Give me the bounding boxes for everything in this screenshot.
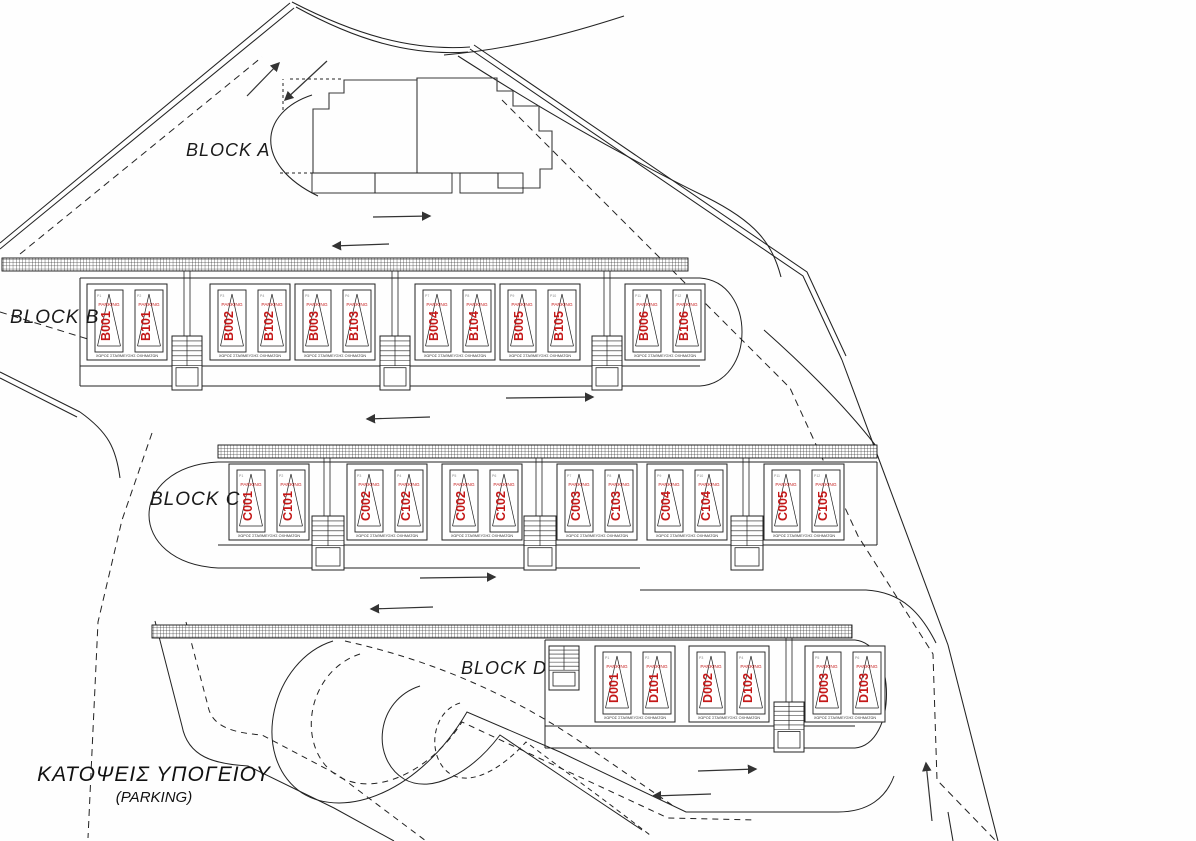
stall-ptag: P10 bbox=[550, 294, 556, 298]
stall-parking-word: PARKING bbox=[775, 482, 797, 488]
parking-stall-C004: P9PARKINGC004 bbox=[655, 470, 683, 532]
stall-id: C001 bbox=[241, 491, 255, 521]
stall-caption: ΧΩΡΟΣ ΣΤΑΘΜΕΥΣΗΣ ΟΧΗΜΑΤΩΝ bbox=[96, 354, 158, 358]
stall-ptag: P5 bbox=[815, 656, 819, 660]
stall-ptag: P4 bbox=[739, 656, 743, 660]
stall-ptag: P1 bbox=[605, 656, 609, 660]
stall-id: B002 bbox=[222, 311, 236, 341]
parking-stall-C003: P7PARKINGC003 bbox=[565, 470, 593, 532]
direction-arrow bbox=[367, 417, 430, 419]
stall-ptag: P4 bbox=[397, 474, 401, 478]
stall-id: D001 bbox=[607, 673, 621, 703]
stall-caption: ΧΩΡΟΣ ΣΤΑΘΜΕΥΣΗΣ ΟΧΗΜΑΤΩΝ bbox=[566, 534, 628, 538]
stall-parking-word: PARKING bbox=[815, 482, 837, 488]
stall-ptag: P8 bbox=[465, 294, 469, 298]
stall-ptag: P2 bbox=[137, 294, 141, 298]
stall-parking-word: PARKING bbox=[606, 664, 628, 670]
stall-id: C002 bbox=[454, 491, 468, 521]
stall-id: C003 bbox=[569, 491, 583, 521]
parking-stall-B106: P12PARKINGB106 bbox=[673, 290, 701, 352]
stall-ptag: P11 bbox=[635, 294, 641, 298]
drawing-title-parking: (PARKING) bbox=[29, 789, 279, 806]
stall-parking-word: PARKING bbox=[138, 302, 160, 308]
stall-caption: ΧΩΡΟΣ ΣΤΑΘΜΕΥΣΗΣ ΟΧΗΜΑΤΩΝ bbox=[304, 354, 366, 358]
stall-parking-word: PARKING bbox=[568, 482, 590, 488]
stall-ptag: P6 bbox=[345, 294, 349, 298]
stall-id: D102 bbox=[741, 673, 755, 703]
stall-caption: ΧΩΡΟΣ ΣΤΑΘΜΕΥΣΗΣ ΟΧΗΜΑΤΩΝ bbox=[634, 354, 696, 358]
retaining-wall-hatch bbox=[152, 625, 852, 638]
parking-stall-B002: P3PARKINGB002 bbox=[218, 290, 246, 352]
direction-arrow bbox=[371, 607, 433, 609]
stall-ptag: P9 bbox=[510, 294, 514, 298]
stall-id: D003 bbox=[817, 673, 831, 703]
direction-arrow bbox=[698, 769, 756, 771]
stall-id: C004 bbox=[659, 491, 673, 521]
stall-id: B006 bbox=[637, 311, 651, 341]
parking-stall-C005: P11PARKINGC005 bbox=[772, 470, 800, 532]
stall-parking-word: PARKING bbox=[698, 482, 720, 488]
stall-id: D101 bbox=[647, 673, 661, 703]
stall-parking-word: PARKING bbox=[493, 482, 515, 488]
stall-ptag: P1 bbox=[97, 294, 101, 298]
parking-stall-C105: P12PARKINGC105 bbox=[812, 470, 840, 532]
stall-parking-word: PARKING bbox=[646, 664, 668, 670]
stall-parking-word: PARKING bbox=[358, 482, 380, 488]
parking-stall-B006: P11PARKINGB006 bbox=[633, 290, 661, 352]
stall-ptag: P8 bbox=[607, 474, 611, 478]
stall-ptag: P7 bbox=[425, 294, 429, 298]
parking-stall-C102: P6PARKINGC102 bbox=[490, 470, 518, 532]
parking-stall-C103: P8PARKINGC103 bbox=[605, 470, 633, 532]
stall-parking-word: PARKING bbox=[453, 482, 475, 488]
block-a-label: BLOCK A bbox=[186, 140, 270, 161]
parking-stall-B101: P2PARKINGB101 bbox=[135, 290, 163, 352]
block-b-label: BLOCK B bbox=[10, 307, 99, 329]
parking-stall-B103: P6PARKINGB103 bbox=[343, 290, 371, 352]
stall-id: B102 bbox=[262, 311, 276, 341]
stall-caption: ΧΩΡΟΣ ΣΤΑΘΜΕΥΣΗΣ ΟΧΗΜΑΤΩΝ bbox=[238, 534, 300, 538]
stall-caption: ΧΩΡΟΣ ΣΤΑΘΜΕΥΣΗΣ ΟΧΗΜΑΤΩΝ bbox=[451, 534, 513, 538]
direction-arrow bbox=[247, 63, 279, 96]
stall-ptag: P3 bbox=[699, 656, 703, 660]
stall-parking-word: PARKING bbox=[261, 302, 283, 308]
direction-arrow bbox=[285, 61, 327, 100]
stall-id: C103 bbox=[609, 491, 623, 521]
parking-stall-B102: P4PARKINGB102 bbox=[258, 290, 286, 352]
staircase-icon bbox=[774, 702, 804, 752]
stall-caption: ΧΩΡΟΣ ΣΤΑΘΜΕΥΣΗΣ ΟΧΗΜΑΤΩΝ bbox=[814, 716, 876, 720]
block-c-label: BLOCK C bbox=[150, 489, 240, 511]
stall-parking-word: PARKING bbox=[511, 302, 533, 308]
parking-stall-C104: P10PARKINGC104 bbox=[695, 470, 723, 532]
stall-caption: ΧΩΡΟΣ ΣΤΑΘΜΕΥΣΗΣ ΟΧΗΜΑΤΩΝ bbox=[424, 354, 486, 358]
parking-stall-D102: P4PARKINGD102 bbox=[737, 652, 765, 714]
stall-ptag: P3 bbox=[220, 294, 224, 298]
site-plan-sheet: P1PARKINGB001P2PARKINGB101ΧΩΡΟΣ ΣΤΑΘΜΕΥΣ… bbox=[0, 0, 1196, 841]
parking-stall-C101: P2PARKINGC101 bbox=[277, 470, 305, 532]
direction-arrow bbox=[373, 216, 430, 217]
stall-id: B004 bbox=[427, 311, 441, 341]
stall-caption: ΧΩΡΟΣ ΣΤΑΘΜΕΥΣΗΣ ΟΧΗΜΑΤΩΝ bbox=[509, 354, 571, 358]
direction-arrow bbox=[420, 577, 495, 578]
parking-stall-B003: P5PARKINGB003 bbox=[303, 290, 331, 352]
stall-ptag: P1 bbox=[239, 474, 243, 478]
drawing-title: ΚΑΤΟΨΕΙΣ ΥΠΟΓΕΙΟΥ (PARKING) bbox=[29, 763, 279, 806]
stall-id: B106 bbox=[677, 311, 691, 341]
stall-parking-word: PARKING bbox=[676, 302, 698, 308]
parking-stall-D101: P2PARKINGD101 bbox=[643, 652, 671, 714]
stall-caption: ΧΩΡΟΣ ΣΤΑΘΜΕΥΣΗΣ ΟΧΗΜΑΤΩΝ bbox=[356, 534, 418, 538]
direction-arrow bbox=[926, 763, 932, 821]
stall-caption: ΧΩΡΟΣ ΣΤΑΘΜΕΥΣΗΣ ΟΧΗΜΑΤΩΝ bbox=[604, 716, 666, 720]
parking-stall-B004: P7PARKINGB004 bbox=[423, 290, 451, 352]
staircase-icon bbox=[380, 336, 410, 390]
stall-parking-word: PARKING bbox=[346, 302, 368, 308]
stall-id: B003 bbox=[307, 311, 321, 341]
stall-id: C002 bbox=[359, 491, 373, 521]
block-a-building bbox=[280, 78, 552, 193]
stall-parking-word: PARKING bbox=[426, 302, 448, 308]
stall-parking-word: PARKING bbox=[306, 302, 328, 308]
retaining-wall-hatch bbox=[2, 258, 688, 271]
stall-ptag: P5 bbox=[452, 474, 456, 478]
block-b-parking-row: P1PARKINGB001P2PARKINGB101ΧΩΡΟΣ ΣΤΑΘΜΕΥΣ… bbox=[80, 271, 742, 390]
stall-parking-word: PARKING bbox=[700, 664, 722, 670]
parking-stall-C002: P3PARKINGC002 bbox=[355, 470, 383, 532]
parking-stall-D003: P5PARKINGD003 bbox=[813, 652, 841, 714]
staircase-icon bbox=[731, 516, 763, 570]
staircase-icon bbox=[172, 336, 202, 390]
stall-caption: ΧΩΡΟΣ ΣΤΑΘΜΕΥΣΗΣ ΟΧΗΜΑΤΩΝ bbox=[773, 534, 835, 538]
stall-ptag: P10 bbox=[697, 474, 703, 478]
stall-parking-word: PARKING bbox=[636, 302, 658, 308]
block-c-parking-row: P1PARKINGC001P2PARKINGC101ΧΩΡΟΣ ΣΤΑΘΜΕΥΣ… bbox=[149, 458, 877, 570]
stall-id: C005 bbox=[776, 491, 790, 521]
stall-parking-word: PARKING bbox=[856, 664, 878, 670]
direction-arrow bbox=[506, 397, 593, 398]
stall-ptag: P6 bbox=[492, 474, 496, 478]
parking-stall-B104: P8PARKINGB104 bbox=[463, 290, 491, 352]
stall-parking-word: PARKING bbox=[280, 482, 302, 488]
parking-stall-C002: P5PARKINGC002 bbox=[450, 470, 478, 532]
stall-parking-word: PARKING bbox=[608, 482, 630, 488]
parking-stall-C102: P4PARKINGC102 bbox=[395, 470, 423, 532]
stall-id: C102 bbox=[494, 491, 508, 521]
stall-id: C104 bbox=[699, 491, 713, 521]
stall-ptag: P2 bbox=[279, 474, 283, 478]
stall-ptag: P3 bbox=[357, 474, 361, 478]
parking-stall-D002: P3PARKINGD002 bbox=[697, 652, 725, 714]
stall-ptag: P6 bbox=[855, 656, 859, 660]
stall-caption: ΧΩΡΟΣ ΣΤΑΘΜΕΥΣΗΣ ΟΧΗΜΑΤΩΝ bbox=[656, 534, 718, 538]
stall-ptag: P12 bbox=[675, 294, 681, 298]
staircase-icon bbox=[549, 646, 579, 690]
stall-ptag: P5 bbox=[305, 294, 309, 298]
stall-caption: ΧΩΡΟΣ ΣΤΑΘΜΕΥΣΗΣ ΟΧΗΜΑΤΩΝ bbox=[219, 354, 281, 358]
stall-id: B001 bbox=[99, 311, 113, 341]
stall-id: B103 bbox=[347, 311, 361, 341]
stall-ptag: P11 bbox=[774, 474, 780, 478]
stall-id: C105 bbox=[816, 491, 830, 521]
stall-parking-word: PARKING bbox=[221, 302, 243, 308]
stall-parking-word: PARKING bbox=[398, 482, 420, 488]
staircase-icon bbox=[592, 336, 622, 390]
stall-ptag: P2 bbox=[645, 656, 649, 660]
stall-id: B101 bbox=[139, 311, 153, 341]
block-d-parking-row: P1PARKINGD001P2PARKINGD101ΧΩΡΟΣ ΣΤΑΘΜΕΥΣ… bbox=[545, 638, 887, 752]
stall-parking-word: PARKING bbox=[240, 482, 262, 488]
parking-stall-D001: P1PARKINGD001 bbox=[603, 652, 631, 714]
stall-parking-word: PARKING bbox=[740, 664, 762, 670]
stall-id: C102 bbox=[399, 491, 413, 521]
stall-ptag: P4 bbox=[260, 294, 264, 298]
stall-id: C101 bbox=[281, 491, 295, 521]
block-d-label: BLOCK D bbox=[461, 658, 547, 679]
stall-ptag: P7 bbox=[567, 474, 571, 478]
stall-parking-word: PARKING bbox=[658, 482, 680, 488]
parking-stall-D103: P6PARKINGD103 bbox=[853, 652, 881, 714]
staircase-icon bbox=[312, 516, 344, 570]
retaining-wall-hatch bbox=[218, 445, 877, 458]
stall-id: B005 bbox=[512, 311, 526, 341]
direction-arrow bbox=[653, 794, 711, 796]
stall-caption: ΧΩΡΟΣ ΣΤΑΘΜΕΥΣΗΣ ΟΧΗΜΑΤΩΝ bbox=[698, 716, 760, 720]
stall-parking-word: PARKING bbox=[816, 664, 838, 670]
direction-arrow bbox=[333, 244, 389, 246]
stall-id: B105 bbox=[552, 311, 566, 341]
stall-ptag: P12 bbox=[814, 474, 820, 478]
stall-parking-word: PARKING bbox=[98, 302, 120, 308]
site-plan-drawing: P1PARKINGB001P2PARKINGB101ΧΩΡΟΣ ΣΤΑΘΜΕΥΣ… bbox=[0, 0, 1196, 841]
stall-id: D002 bbox=[701, 673, 715, 703]
stall-parking-word: PARKING bbox=[551, 302, 573, 308]
stall-id: B104 bbox=[467, 311, 481, 341]
staircase-icon bbox=[524, 516, 556, 570]
parking-stall-C001: P1PARKINGC001 bbox=[237, 470, 265, 532]
stall-parking-word: PARKING bbox=[466, 302, 488, 308]
stall-id: D103 bbox=[857, 673, 871, 703]
stall-ptag: P9 bbox=[657, 474, 661, 478]
drawing-title-greek: ΚΑΤΟΨΕΙΣ ΥΠΟΓΕΙΟΥ bbox=[29, 763, 279, 787]
parking-stall-B005: P9PARKINGB005 bbox=[508, 290, 536, 352]
parking-stall-B105: P10PARKINGB105 bbox=[548, 290, 576, 352]
